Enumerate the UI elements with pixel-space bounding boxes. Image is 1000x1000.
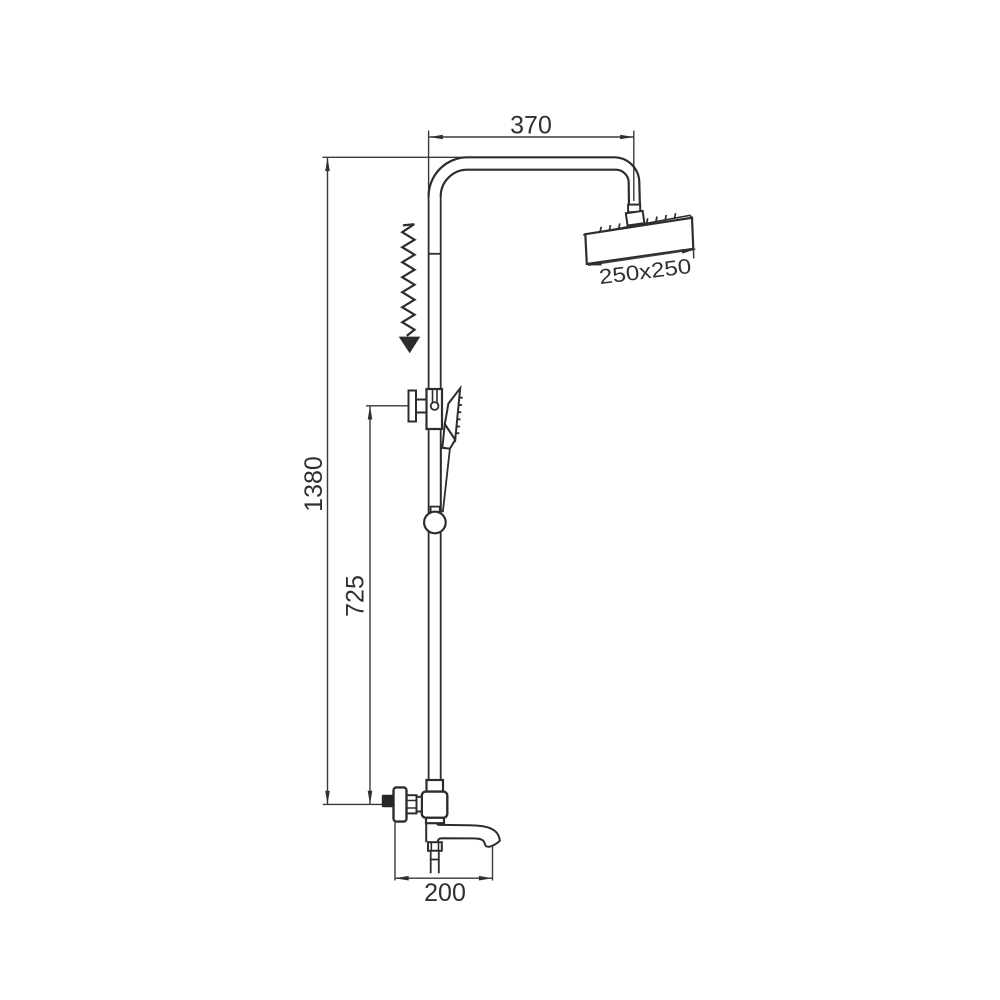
svg-text:1380: 1380 — [300, 456, 328, 512]
svg-text:725: 725 — [342, 575, 370, 617]
svg-text:370: 370 — [510, 112, 552, 140]
svg-text:200: 200 — [424, 879, 466, 907]
